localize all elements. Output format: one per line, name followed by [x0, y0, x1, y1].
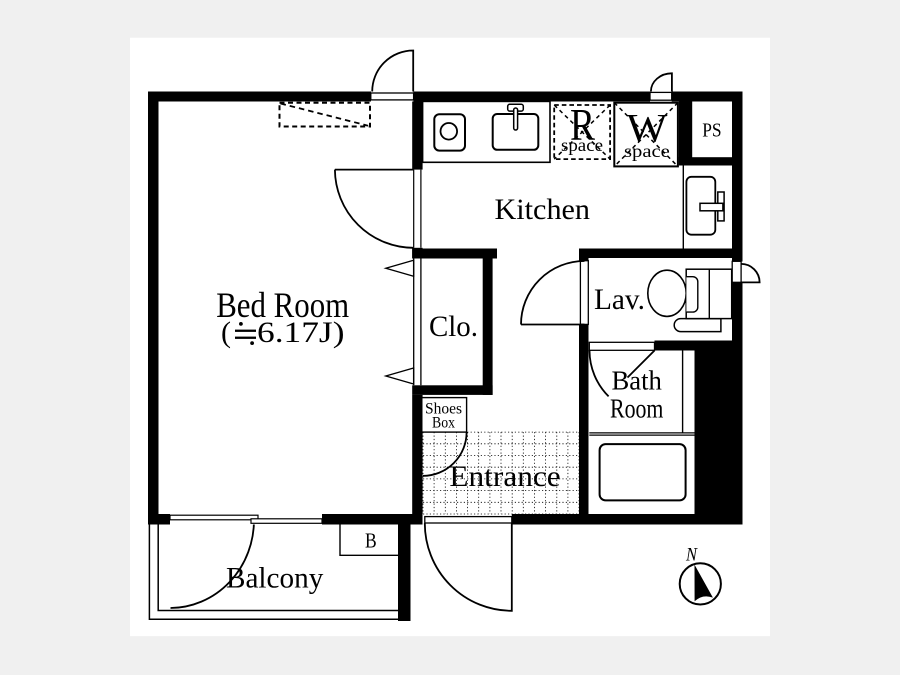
svg-text:Lav.: Lav.: [594, 283, 645, 316]
svg-text:N: N: [685, 545, 698, 566]
svg-text:PS: PS: [702, 120, 721, 142]
svg-text:space: space: [624, 141, 670, 161]
svg-text:Bath: Bath: [612, 365, 663, 395]
svg-text:Balcony: Balcony: [226, 562, 323, 595]
svg-text:B: B: [365, 528, 377, 552]
svg-text:Kitchen: Kitchen: [495, 193, 591, 226]
svg-text:6.17J): 6.17J): [257, 316, 345, 349]
svg-text:Entrance: Entrance: [449, 460, 560, 493]
svg-text:Clo.: Clo.: [429, 310, 478, 343]
svg-text:Room: Room: [610, 393, 663, 423]
svg-text:space: space: [561, 135, 603, 155]
svg-text:Box: Box: [432, 414, 455, 431]
svg-text:(: (: [221, 316, 231, 349]
